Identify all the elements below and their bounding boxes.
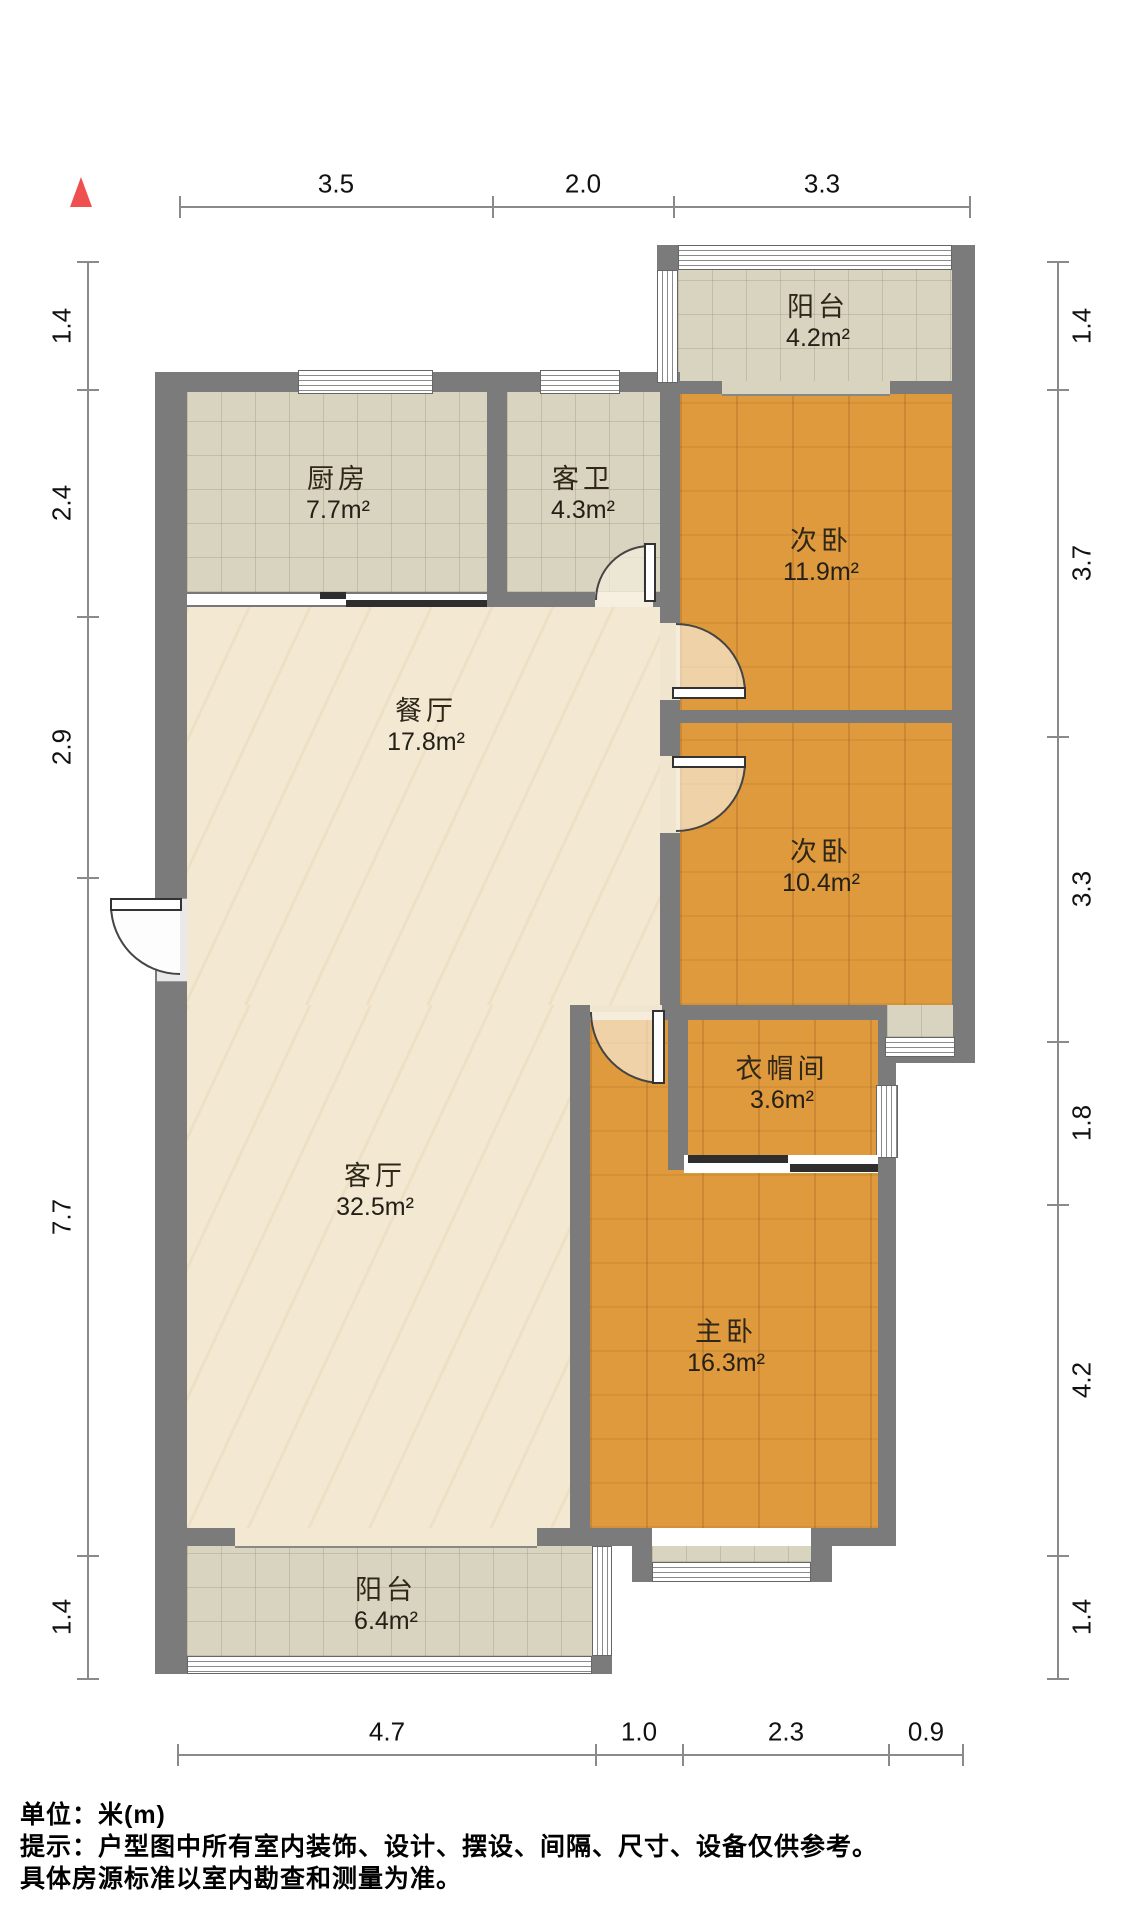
room-area: 32.5m² bbox=[336, 1192, 414, 1222]
dim-label-top: 3.5 bbox=[318, 169, 354, 200]
wall-bath-bedroom bbox=[660, 392, 680, 594]
balcony-top-left-window bbox=[657, 270, 678, 383]
dim-tick bbox=[179, 196, 181, 218]
cloakroom-window bbox=[876, 1085, 898, 1158]
dim-label-left: 2.9 bbox=[47, 729, 78, 765]
living-balcony-opening bbox=[235, 1528, 537, 1548]
dim-tick bbox=[1047, 1555, 1069, 1557]
dim-line-left bbox=[87, 262, 89, 1679]
wall-bath-bottom-left bbox=[507, 592, 595, 607]
room-label-kitchen: 厨房 7.7m² bbox=[306, 463, 370, 525]
floor-plan: 阳台 4.2m² 厨房 7.7m² 客卫 4.3m² 次卧 11.9m² 餐厅 … bbox=[0, 0, 1146, 1920]
room-label-balcony-top: 阳台 4.2m² bbox=[786, 291, 850, 353]
footer-disclaimer-line1: 提示：户型图中所有室内装饰、设计、摆设、间隔、尺寸、设备仅供参考。 bbox=[20, 1827, 878, 1863]
dim-tick bbox=[1047, 261, 1069, 263]
wall-hall-bedroom-c bbox=[660, 833, 680, 1005]
guest-bath-window bbox=[540, 370, 620, 394]
wall-balcony-bottom-corner-right bbox=[592, 1656, 612, 1674]
dim-label-right: 3.7 bbox=[1067, 545, 1098, 581]
dim-label-top: 3.3 bbox=[804, 169, 840, 200]
dim-label-bottom: 2.3 bbox=[768, 1717, 804, 1748]
kitchen-sliding-door-panel-1 bbox=[320, 592, 346, 599]
room-name: 客卫 bbox=[551, 463, 615, 495]
entry-door-arc bbox=[110, 905, 180, 975]
ac-bay-floor bbox=[887, 1005, 953, 1037]
room-label-dining: 餐厅 17.8m² bbox=[387, 695, 465, 757]
room-name: 衣帽间 bbox=[736, 1053, 829, 1085]
room-name: 阳台 bbox=[786, 291, 850, 323]
wall-balcony-top-corner bbox=[657, 245, 678, 270]
wall-kitchen-bath bbox=[487, 392, 507, 594]
wall-balcony-bedroom-right bbox=[890, 381, 952, 394]
room-name: 餐厅 bbox=[387, 695, 465, 727]
bedroom-2b-door-leaf bbox=[672, 756, 746, 768]
dim-tick bbox=[888, 1744, 890, 1766]
master-bedroom-floor bbox=[590, 1020, 878, 1528]
room-label-guest-bath: 客卫 4.3m² bbox=[551, 463, 615, 525]
dim-label-right: 1.4 bbox=[1067, 1599, 1098, 1635]
cloakroom-sliding-door-panel-1 bbox=[688, 1155, 788, 1163]
room-label-bedroom-2b: 次卧 10.4m² bbox=[782, 836, 860, 898]
master-bay-window bbox=[652, 1562, 811, 1582]
bedroom-2a-door-leaf bbox=[672, 687, 746, 699]
dim-tick bbox=[1047, 389, 1069, 391]
dim-tick bbox=[77, 1678, 99, 1680]
room-label-cloakroom: 衣帽间 3.6m² bbox=[736, 1053, 829, 1115]
room-area: 16.3m² bbox=[687, 1348, 765, 1378]
wall-living-master bbox=[570, 1005, 590, 1546]
room-label-balcony-bottom: 阳台 6.4m² bbox=[354, 1574, 418, 1636]
room-area: 11.9m² bbox=[783, 557, 859, 587]
entry-door-leaf bbox=[110, 898, 182, 911]
dim-tick bbox=[77, 1555, 99, 1557]
dim-label-left: 2.4 bbox=[47, 485, 78, 521]
dim-label-bottom: 0.9 bbox=[908, 1717, 944, 1748]
wall-balcony-bedroom-left bbox=[676, 381, 722, 394]
kitchen-sliding-door-panel-2 bbox=[346, 600, 487, 607]
master-door-leaf bbox=[652, 1010, 665, 1084]
dim-tick bbox=[682, 1744, 684, 1766]
wall-left-exterior bbox=[155, 372, 187, 1674]
dim-tick bbox=[77, 877, 99, 879]
wall-between-bedrooms bbox=[660, 710, 952, 723]
dim-label-top: 2.0 bbox=[565, 169, 601, 200]
dim-label-left: 1.4 bbox=[47, 1599, 78, 1635]
bedroom-2a-balcony-opening bbox=[722, 381, 890, 396]
room-area: 3.6m² bbox=[736, 1085, 829, 1115]
wall-balcony-bottom-corner-left bbox=[155, 1656, 187, 1674]
wall-hall-bedroom-a bbox=[660, 592, 680, 623]
dim-label-bottom: 1.0 bbox=[621, 1717, 657, 1748]
dim-tick bbox=[595, 1744, 597, 1766]
room-name: 厨房 bbox=[306, 463, 370, 495]
living-floor bbox=[187, 1005, 570, 1528]
dim-tick bbox=[1047, 1041, 1069, 1043]
dim-line-right bbox=[1057, 262, 1059, 1679]
room-name: 客厅 bbox=[336, 1160, 414, 1192]
dim-tick bbox=[1047, 1204, 1069, 1206]
dim-tick bbox=[492, 196, 494, 218]
room-area: 6.4m² bbox=[354, 1606, 418, 1636]
dim-tick bbox=[77, 616, 99, 618]
dim-label-right: 1.8 bbox=[1067, 1105, 1098, 1141]
dim-tick bbox=[77, 389, 99, 391]
wall-bay-pier-left bbox=[632, 1546, 652, 1582]
dim-tick bbox=[969, 196, 971, 218]
wall-living-balcony-left bbox=[155, 1528, 235, 1546]
cloakroom-sliding-door-panel-2 bbox=[790, 1164, 878, 1172]
master-bay-sill bbox=[652, 1546, 811, 1562]
wall-hall-bedroom-b bbox=[660, 700, 680, 756]
room-label-living: 客厅 32.5m² bbox=[336, 1160, 414, 1222]
wall-master-top-right bbox=[662, 1005, 887, 1020]
dim-tick bbox=[177, 1744, 179, 1766]
dim-label-right: 3.3 bbox=[1067, 871, 1098, 907]
room-area: 17.8m² bbox=[387, 727, 465, 757]
room-area: 7.7m² bbox=[306, 495, 370, 525]
wall-cloakroom-left bbox=[668, 1020, 688, 1170]
guest-bath-door-leaf bbox=[644, 543, 656, 602]
dim-tick bbox=[1047, 736, 1069, 738]
dim-line-bottom bbox=[178, 1754, 964, 1756]
wall-living-balcony-right bbox=[537, 1528, 590, 1546]
dim-tick bbox=[673, 196, 675, 218]
dim-label-bottom: 4.7 bbox=[369, 1717, 405, 1748]
wall-master-bottom-right bbox=[811, 1528, 896, 1546]
room-area: 4.3m² bbox=[551, 495, 615, 525]
dining-floor bbox=[187, 607, 660, 1005]
dim-label-left: 1.4 bbox=[47, 308, 78, 344]
room-area: 10.4m² bbox=[782, 868, 860, 898]
wall-right-upper-exterior bbox=[952, 245, 975, 1057]
dim-tick bbox=[1047, 1678, 1069, 1680]
dim-label-left: 7.7 bbox=[47, 1199, 78, 1235]
balcony-bottom-right-window bbox=[592, 1546, 612, 1656]
room-label-bedroom-2a: 次卧 11.9m² bbox=[783, 525, 859, 587]
dim-tick bbox=[77, 261, 99, 263]
wall-bay-pier-right bbox=[811, 1546, 832, 1582]
footer-disclaimer-line2: 具体房源标准以室内勘查和测量为准。 bbox=[20, 1859, 462, 1895]
room-name: 主卧 bbox=[687, 1316, 765, 1348]
dim-tick bbox=[962, 1744, 964, 1766]
balcony-bottom-window bbox=[187, 1656, 592, 1674]
room-name: 次卧 bbox=[782, 836, 860, 868]
ac-bay-window bbox=[885, 1037, 955, 1057]
dim-label-right: 1.4 bbox=[1067, 308, 1098, 344]
room-name: 阳台 bbox=[354, 1574, 418, 1606]
dim-line-top bbox=[180, 206, 971, 208]
wall-junction-kitchen bbox=[487, 592, 507, 607]
room-label-master: 主卧 16.3m² bbox=[687, 1316, 765, 1378]
room-area: 4.2m² bbox=[786, 323, 850, 353]
footer-unit-note: 单位：米(m) bbox=[20, 1795, 166, 1831]
kitchen-window bbox=[298, 370, 433, 394]
north-arrow-icon bbox=[70, 177, 92, 207]
balcony-top-window bbox=[678, 245, 952, 270]
dim-label-right: 4.2 bbox=[1067, 1362, 1098, 1398]
room-name: 次卧 bbox=[783, 525, 859, 557]
